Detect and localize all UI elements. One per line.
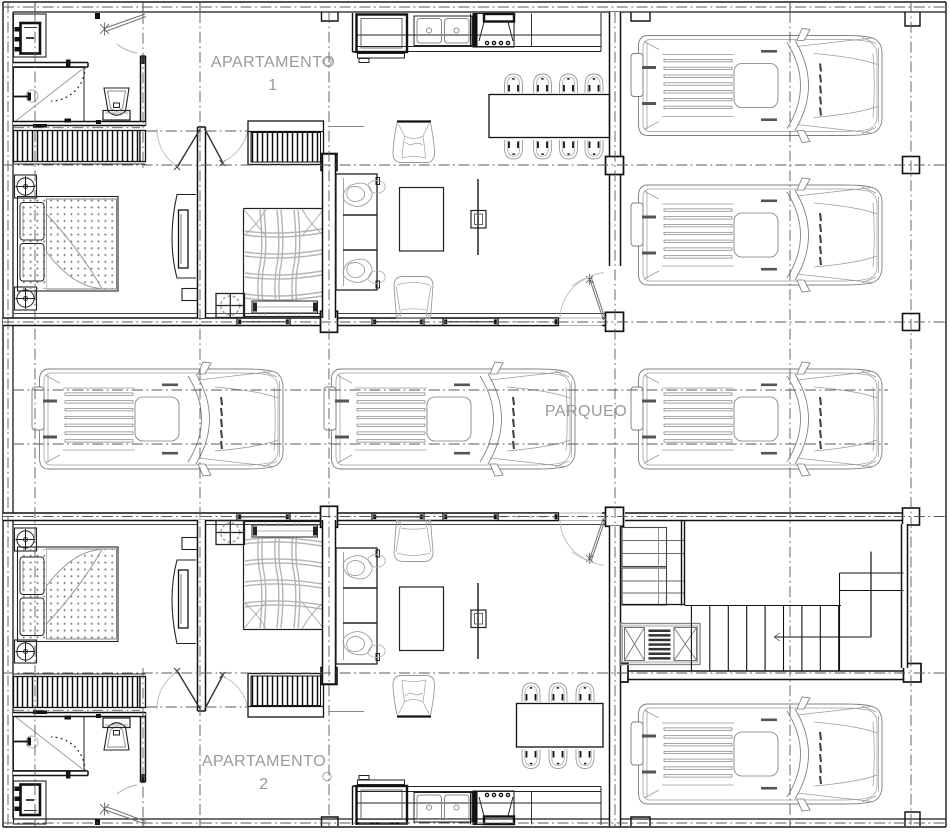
svg-text:1: 1 [268,77,277,94]
svg-text:APARTAMENTO: APARTAMENTO [211,54,335,71]
svg-text:APARTAMENTO: APARTAMENTO [202,753,326,770]
svg-text:2: 2 [259,776,268,793]
svg-text:PARQUEO: PARQUEO [545,403,627,420]
